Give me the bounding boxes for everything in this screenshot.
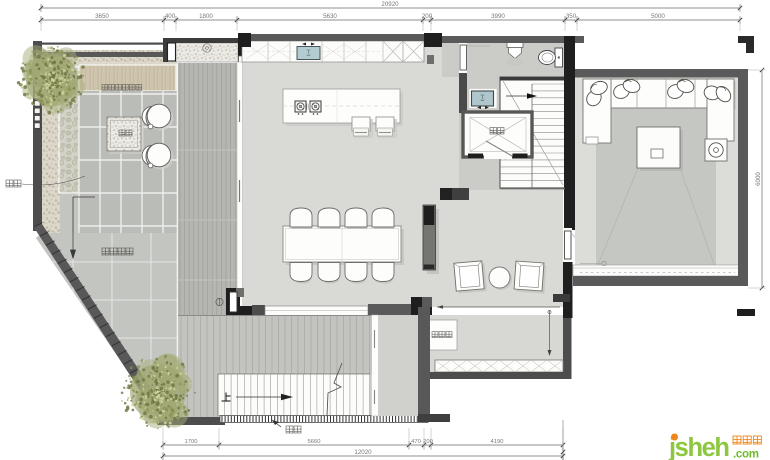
svg-text:5000: 5000 [651,13,665,20]
svg-text:3650: 3650 [95,13,109,20]
svg-text:470: 470 [411,439,421,445]
svg-text:12020: 12020 [354,449,372,456]
svg-text:200: 200 [423,439,433,445]
svg-text:1800: 1800 [199,13,213,20]
svg-text:5630: 5630 [323,13,337,20]
svg-text:6000: 6000 [755,172,762,186]
svg-text:1700: 1700 [185,439,198,445]
svg-text:5660: 5660 [308,439,321,445]
svg-text:3990: 3990 [491,13,505,20]
svg-text:20920: 20920 [381,1,399,8]
svg-text:.com: .com [733,449,759,460]
svg-text:350: 350 [566,13,577,20]
svg-text:200: 200 [422,13,433,20]
svg-text:400: 400 [165,13,176,20]
svg-text:4190: 4190 [491,439,504,445]
